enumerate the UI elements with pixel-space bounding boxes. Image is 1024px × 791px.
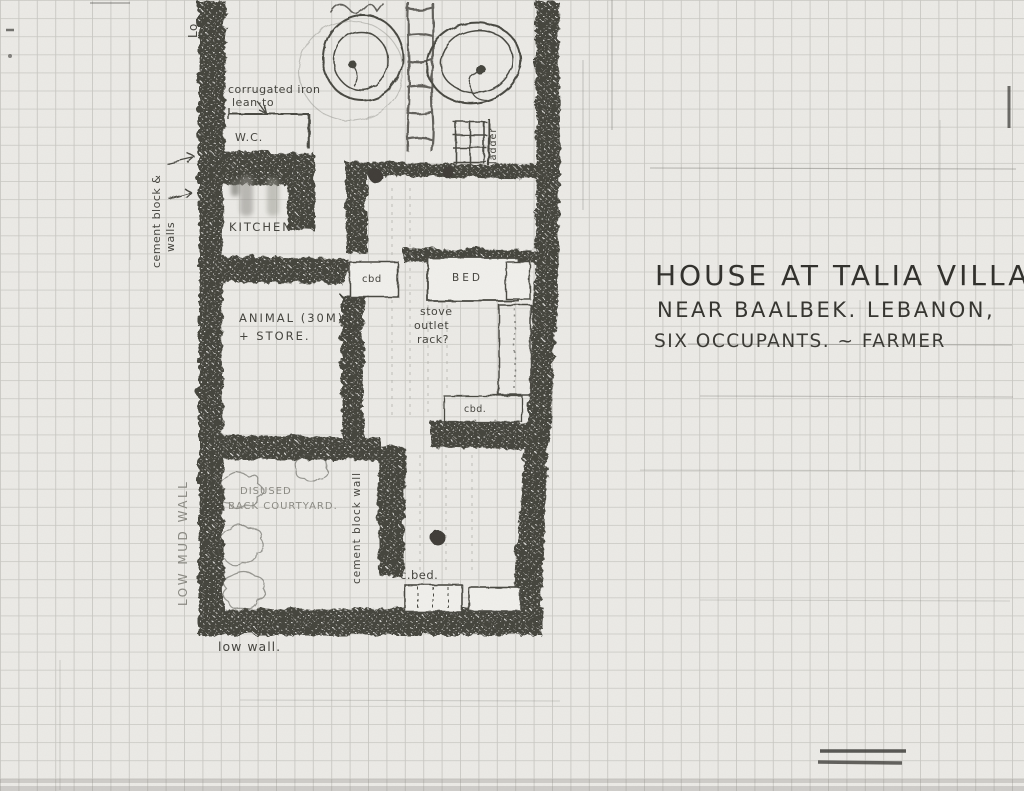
photocopy-noise-overlay <box>0 0 1024 791</box>
floor-plan-drawing: HOUSE AT TALIA VILLAGE NEAR BAALBEK. LEB… <box>0 0 1024 791</box>
scanned-floor-plan-page: HOUSE AT TALIA VILLAGE NEAR BAALBEK. LEB… <box>0 0 1024 791</box>
